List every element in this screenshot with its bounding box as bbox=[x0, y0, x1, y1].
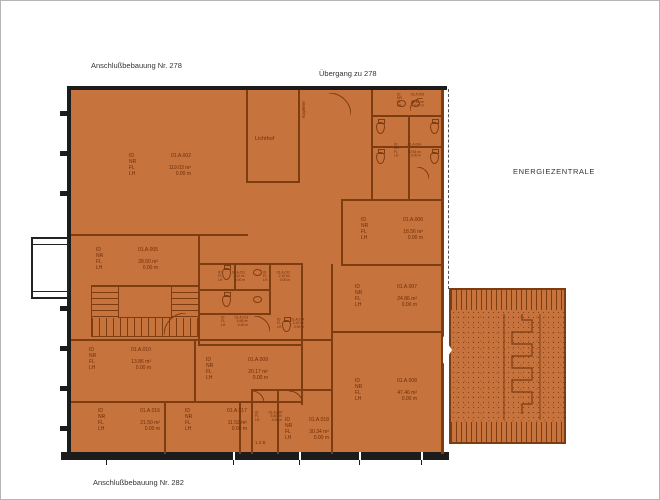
wall bbox=[71, 401, 303, 403]
wall bbox=[341, 199, 373, 201]
wall-tick bbox=[60, 306, 67, 311]
terrace-stair-zigzag bbox=[503, 314, 541, 420]
terrace-area bbox=[449, 288, 566, 444]
room-label-01A018: ID01.A.018 NR FL30.34 m² LH0.00 m bbox=[285, 417, 329, 441]
wall bbox=[331, 333, 333, 454]
balcony-line bbox=[33, 244, 67, 245]
wall bbox=[164, 403, 166, 454]
wall-tick bbox=[60, 386, 67, 391]
dim-tick bbox=[421, 460, 422, 465]
wall bbox=[246, 90, 248, 183]
room-label-01A002: ID01.A.002 NR FL119.03 m² LH0.00 m bbox=[129, 153, 191, 177]
room-label-01A009: ID01.A.009 NR FL20.17 m² LH0.00 m bbox=[206, 357, 268, 381]
level-mark: 1.2 B bbox=[255, 440, 266, 445]
wall bbox=[408, 117, 410, 199]
wall bbox=[71, 339, 333, 341]
room-label-01A013: ID01.A.013 FL4.65 m² LH0.00 m bbox=[221, 316, 248, 327]
stair-treads-left bbox=[92, 286, 118, 318]
wall-slit bbox=[421, 452, 423, 460]
wall bbox=[371, 199, 443, 201]
wall bbox=[198, 344, 303, 346]
wall bbox=[198, 236, 200, 265]
terrace-notch bbox=[443, 336, 452, 364]
room-label-01A008: ID01.A.008 NR FL47.46 m² LH0.00 m bbox=[355, 378, 417, 402]
door-swing-icon bbox=[164, 313, 186, 335]
label-anschlussbebauung-282: Anschlußbebauung Nr. 282 bbox=[93, 478, 184, 487]
room-label-01A015: ID01.A.015 FL5.40 m² LH0.00 m bbox=[255, 411, 282, 422]
dim-tick bbox=[299, 460, 300, 465]
wall-slit bbox=[233, 452, 235, 460]
section-boundary-dashed bbox=[448, 89, 449, 289]
wall-slit bbox=[299, 452, 301, 460]
room-label-01A006: ID01.A.006 NR FL18.56 m² LH0.00 m bbox=[361, 217, 423, 241]
dim-tick bbox=[233, 460, 234, 465]
sink-icon bbox=[253, 296, 262, 303]
wall bbox=[331, 264, 333, 333]
room-label-01A004: ID01.A.004 NR FL10.93 m² LH0.00 m bbox=[394, 143, 421, 158]
wall-tick bbox=[60, 191, 67, 196]
sink-icon bbox=[253, 269, 262, 276]
label-energiezentrale: ENERGIEZENTRALE bbox=[513, 167, 595, 176]
room-label-01A014: ID01.A.014 FL3.20 m² LH0.00 m bbox=[277, 318, 304, 329]
dim-tick bbox=[359, 460, 360, 465]
wall bbox=[301, 263, 303, 346]
door-swing-icon bbox=[289, 391, 303, 405]
wall bbox=[71, 234, 248, 236]
balcony-outline bbox=[31, 237, 69, 299]
room-label-01A003: ID01.A.003 NR FL11.48 m² LH0.00 m bbox=[397, 93, 424, 108]
wall bbox=[198, 263, 303, 265]
door-swing-icon bbox=[252, 391, 264, 403]
terrace-hatch-bottom bbox=[451, 422, 564, 442]
wall-east bbox=[441, 90, 444, 454]
wall bbox=[298, 90, 300, 183]
room-label-01A012: ID01.A.012 FL2.10 m² LH0.00 m bbox=[263, 271, 290, 282]
terrace-hatch-top bbox=[451, 290, 564, 310]
balcony-line bbox=[33, 291, 67, 292]
room-label-01A011: ID01.A.011 FL2.10 m² LH0.00 m bbox=[218, 271, 245, 282]
wall-tick bbox=[60, 151, 67, 156]
floorplan-canvas: Anschlußbebauung Nr. 278 Übergang zu 278… bbox=[0, 0, 660, 500]
room-label-01A016: ID01.A.016 NR FL21.50 m² LH0.00 m bbox=[98, 408, 160, 432]
room-name-lichthof: Lichthof bbox=[255, 136, 274, 142]
room-label-01A010: ID01.A.010 NR FL13.86 m² LH0.00 m bbox=[89, 347, 151, 371]
label-anschlussbebauung-278: Anschlußbebauung Nr. 278 bbox=[91, 61, 182, 70]
door-swing-icon bbox=[329, 93, 351, 115]
room-label-01A005: ID01.A.005 NR FL28.50 m² LH0.00 m bbox=[96, 247, 158, 271]
wall-tick bbox=[60, 111, 67, 116]
door-swing-icon bbox=[417, 167, 429, 179]
dim-tick bbox=[106, 460, 107, 465]
outer-wall-south bbox=[61, 452, 449, 460]
door-swing-icon bbox=[254, 316, 270, 332]
room-label-01A017: ID01.A.017 NR FL11.52 m² LH0.00 m bbox=[185, 408, 247, 432]
wall bbox=[246, 181, 300, 183]
wall-slit bbox=[359, 452, 361, 460]
label-uebergang-278: Übergang zu 278 bbox=[319, 69, 377, 78]
wall bbox=[194, 341, 196, 403]
room-name-vertical: Kopierer bbox=[301, 101, 306, 118]
outer-wall-north bbox=[67, 86, 447, 90]
wall bbox=[341, 199, 343, 266]
room-label-01A007: ID01.A.007 NR FL24.86 m² LH0.00 m bbox=[355, 284, 417, 308]
wall-tick bbox=[60, 426, 67, 431]
wall bbox=[331, 331, 443, 333]
wall-tick bbox=[60, 346, 67, 351]
wall bbox=[341, 264, 443, 266]
